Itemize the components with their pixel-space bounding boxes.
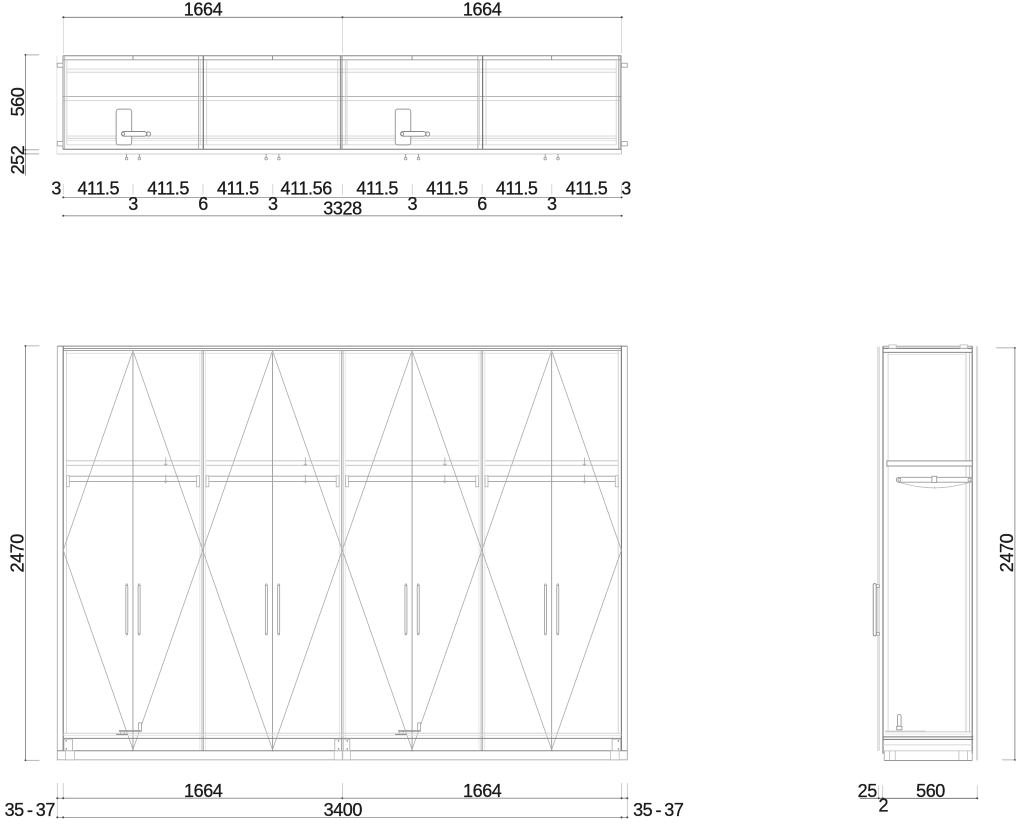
svg-text:2: 2 (878, 796, 888, 816)
svg-text:3: 3 (547, 194, 557, 214)
svg-text:2470: 2470 (7, 534, 27, 573)
svg-text:35 - 37: 35 - 37 (633, 800, 684, 820)
svg-text:6: 6 (477, 194, 487, 214)
svg-text:1664: 1664 (184, 781, 223, 801)
svg-text:411.5: 411.5 (496, 179, 538, 199)
svg-text:2470: 2470 (997, 533, 1017, 572)
svg-text:3400: 3400 (324, 800, 363, 820)
svg-text:1664: 1664 (184, 0, 223, 19)
svg-text:560: 560 (8, 87, 28, 116)
svg-text:3: 3 (128, 194, 138, 214)
svg-text:25: 25 (858, 781, 878, 801)
svg-text:411.56: 411.56 (281, 179, 333, 199)
svg-text:3328: 3328 (323, 199, 362, 219)
svg-text:411.5: 411.5 (147, 179, 189, 199)
svg-text:3: 3 (621, 179, 631, 199)
svg-text:252: 252 (8, 145, 28, 174)
svg-text:1664: 1664 (463, 0, 502, 19)
svg-text:411.5: 411.5 (217, 179, 259, 199)
svg-text:411.5: 411.5 (566, 179, 608, 199)
svg-text:411.5: 411.5 (356, 179, 398, 199)
svg-text:3: 3 (51, 179, 61, 199)
svg-text:1664: 1664 (463, 781, 502, 801)
svg-text:3: 3 (407, 194, 417, 214)
svg-text:411.5: 411.5 (77, 179, 119, 199)
svg-text:560: 560 (916, 781, 945, 801)
svg-text:3: 3 (268, 194, 278, 214)
svg-text:6: 6 (198, 194, 208, 214)
svg-text:35 - 37: 35 - 37 (5, 800, 56, 820)
svg-text:411.5: 411.5 (426, 179, 468, 199)
